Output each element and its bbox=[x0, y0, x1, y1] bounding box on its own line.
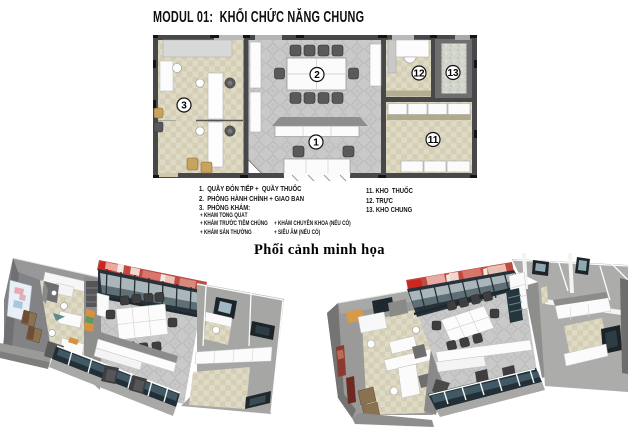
svg-text:3: 3 bbox=[181, 101, 187, 112]
svg-text:12: 12 bbox=[413, 69, 425, 80]
svg-text:11: 11 bbox=[428, 135, 439, 146]
svg-text:1: 1 bbox=[313, 138, 319, 149]
svg-text:13: 13 bbox=[447, 68, 459, 79]
svg-text:2: 2 bbox=[314, 70, 320, 81]
